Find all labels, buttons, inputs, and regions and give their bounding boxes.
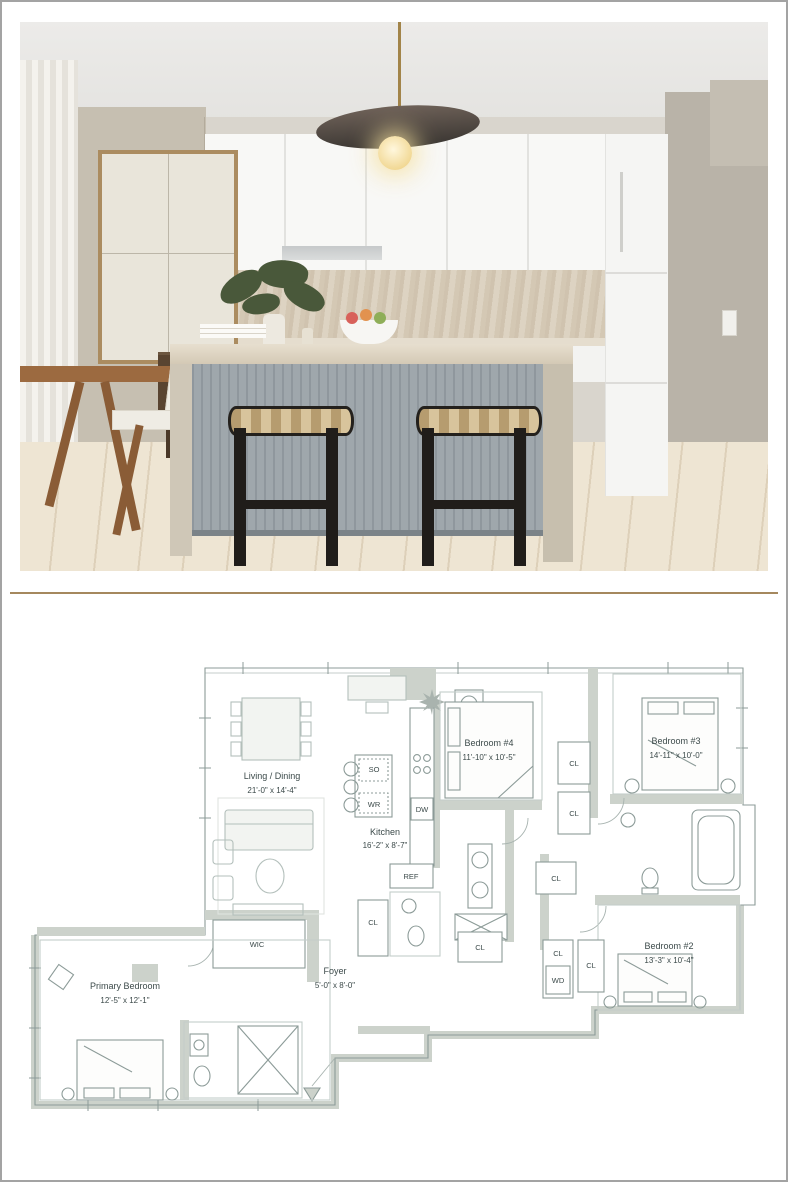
- bathroom-center: [455, 844, 507, 940]
- dw-label: DW: [416, 805, 429, 814]
- cl-label: CL: [569, 759, 579, 768]
- wic-label: WIC: [250, 940, 265, 949]
- room-label-primary: Primary Bedroom: [90, 981, 160, 991]
- bar-stool-leg: [326, 428, 338, 566]
- cl-label: CL: [368, 918, 378, 927]
- room-label-bedroom4: Bedroom #4: [464, 738, 513, 748]
- so-label: SO: [369, 765, 380, 774]
- cl-label: CL: [569, 809, 579, 818]
- soffit: [710, 80, 768, 166]
- cabinet-seam: [605, 272, 667, 274]
- bar-stool-leg: [514, 428, 526, 566]
- pendant-stem: [398, 22, 401, 118]
- listing-card: Living / Dining 21'-0" x 14'-4" Kitchen …: [0, 0, 788, 1182]
- room-dims-primary: 12'-5" x 12'-1": [100, 996, 149, 1005]
- room-dims-bedroom4: 11'-10" x 10'-5": [462, 753, 515, 762]
- bar-stool-rail: [234, 500, 338, 509]
- fruit: [346, 312, 358, 324]
- floor-plan: Living / Dining 21'-0" x 14'-4" Kitchen …: [28, 648, 758, 1113]
- bedroom3-furniture: [613, 674, 741, 794]
- ref-label: REF: [404, 872, 419, 881]
- room-label-bedroom3: Bedroom #3: [651, 736, 700, 746]
- bar-stool-rail: [422, 500, 526, 509]
- pendant-bulb: [378, 136, 412, 170]
- room-dims-bedroom2: 13'-3" x 10'-4": [644, 956, 693, 965]
- section-divider: [10, 592, 778, 594]
- room-dims-kitchen: 16'-2" x 8'-7": [363, 841, 408, 850]
- tall-cabinets: [605, 134, 668, 496]
- room-dims-foyer: 5'-0" x 8'-0": [315, 981, 355, 990]
- entry-marker: [304, 1088, 320, 1101]
- room-dims-bedroom3: 14'-11" x 10'-0": [649, 751, 702, 760]
- artwork-line: [168, 154, 169, 360]
- cabinet-seam: [605, 382, 667, 384]
- wr-label: WR: [368, 800, 381, 809]
- island-waterfall-left: [170, 344, 192, 556]
- kitchen-photo: [20, 22, 768, 571]
- room-dims-living: 21'-0" x 14'-4": [247, 786, 296, 795]
- dining-table: [20, 366, 180, 382]
- closet-box: [358, 900, 388, 956]
- artwork-line: [102, 253, 234, 254]
- room-label-living: Living / Dining: [244, 771, 301, 781]
- book-stack: [200, 324, 266, 338]
- fruit: [360, 309, 372, 321]
- bathroom-lower-left: [184, 1022, 302, 1098]
- fridge-handle: [620, 172, 623, 252]
- island-waterfall-right: [543, 344, 573, 562]
- cl-label: CL: [475, 943, 485, 952]
- cl-label: CL: [551, 874, 561, 883]
- island-countertop: [170, 344, 573, 364]
- cl-label: CL: [586, 961, 596, 970]
- fruit: [374, 312, 386, 324]
- range-hood: [282, 246, 382, 260]
- wd-label: WD: [552, 976, 565, 985]
- bar-stool-leg: [234, 428, 246, 566]
- light-switch: [722, 310, 737, 336]
- bar-stool-leg: [422, 428, 434, 566]
- bathroom-top-right: [621, 810, 740, 894]
- room-label-foyer: Foyer: [323, 966, 346, 976]
- powder-room: [390, 892, 440, 956]
- room-label-bedroom2: Bedroom #2: [644, 941, 693, 951]
- cl-label: CL: [553, 949, 563, 958]
- room-label-kitchen: Kitchen: [370, 827, 400, 837]
